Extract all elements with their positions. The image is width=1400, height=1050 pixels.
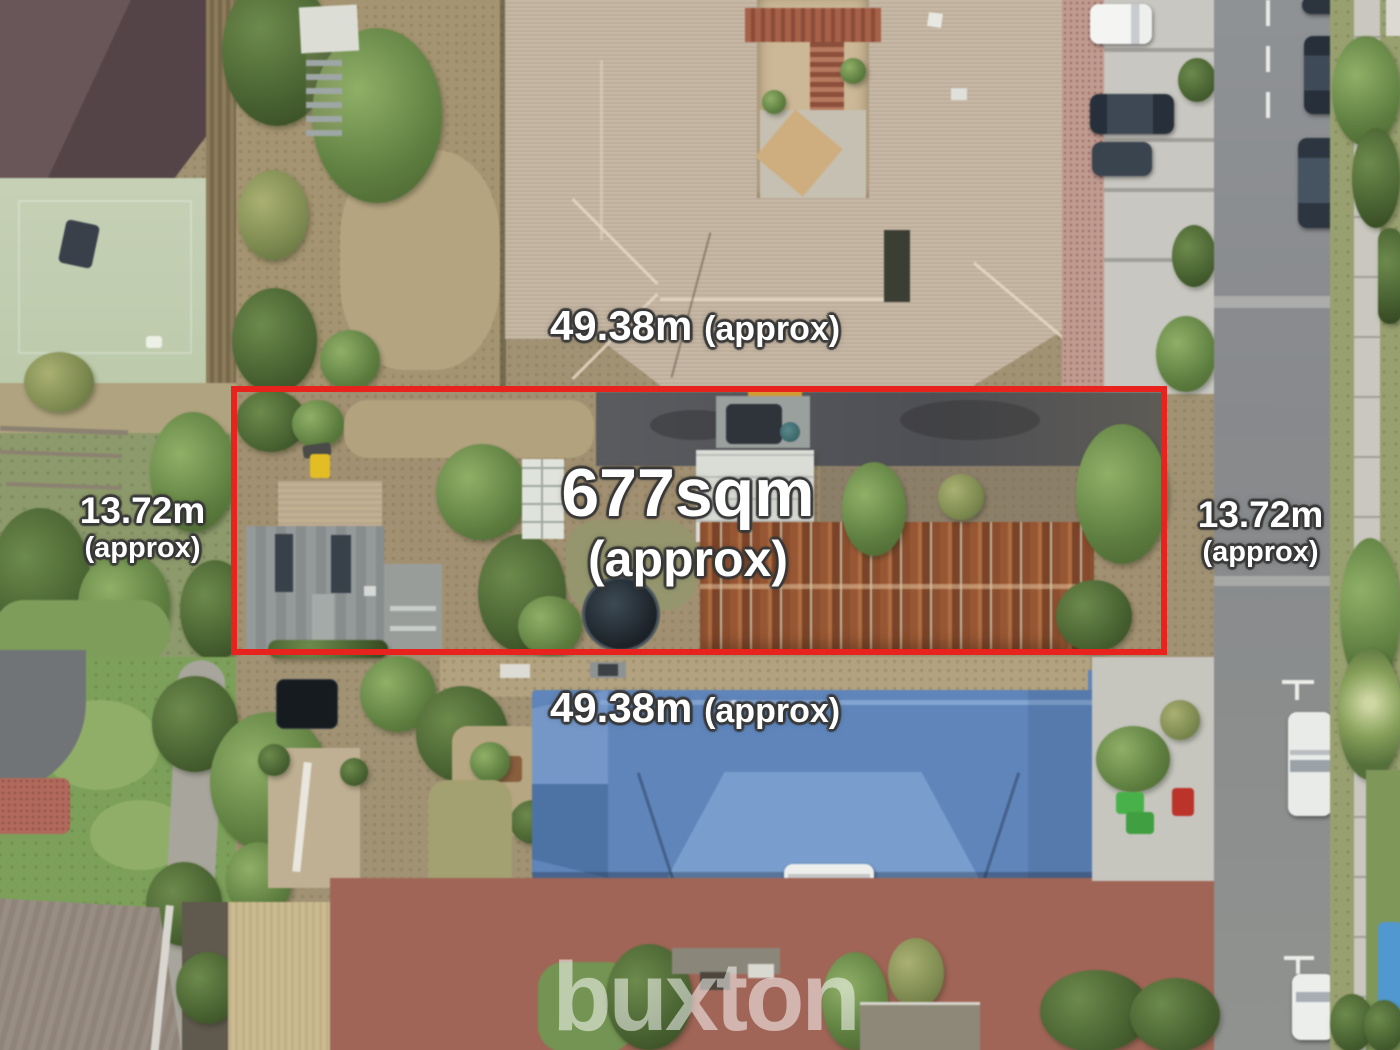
yard-object-dark — [598, 664, 618, 676]
ute-window — [1290, 760, 1330, 772]
bottom-width-label: 49.38m (approx) — [505, 686, 885, 730]
yard-object — [500, 664, 530, 678]
court-line — [18, 200, 192, 354]
hedge — [1378, 228, 1400, 324]
bay-line — [1104, 48, 1214, 52]
right-depth-value: 13.72m — [1158, 496, 1363, 534]
roof-ridge — [600, 60, 603, 240]
dark-car — [1090, 94, 1174, 134]
road-crossing — [1214, 576, 1330, 586]
white-car — [1090, 4, 1152, 44]
blue-pool — [1378, 922, 1400, 1010]
road-centerline — [1266, 0, 1270, 130]
top-width-qualifier: (approx) — [704, 310, 840, 348]
parking-t-mark — [1296, 960, 1300, 974]
hedge — [1364, 1000, 1400, 1050]
area-value: 677sqm — [528, 458, 848, 529]
white-roof-sliver — [1386, 0, 1400, 36]
plant — [840, 58, 866, 84]
plant — [762, 90, 786, 114]
left-depth-label: 13.72m (approx) — [35, 492, 250, 564]
left-depth-qualifier: (approx) — [35, 533, 250, 563]
area-label: 677sqm (approx) — [528, 458, 848, 585]
bottom-width-qualifier: (approx) — [704, 692, 840, 730]
car-window — [1296, 992, 1330, 1002]
top-width-label: 49.38m (approx) — [505, 304, 885, 348]
right-depth-qualifier: (approx) — [1158, 537, 1363, 567]
house-roof-dark — [0, 0, 212, 192]
court-marking — [146, 336, 162, 348]
tree — [238, 170, 308, 260]
bush — [1160, 700, 1200, 740]
tree — [1332, 36, 1400, 146]
road-crossing — [1214, 296, 1330, 308]
tree — [888, 938, 944, 1008]
dark-doorway — [884, 230, 910, 302]
hedge — [1130, 978, 1220, 1050]
shade-structure — [299, 5, 359, 54]
stairs — [810, 42, 844, 112]
walkway-bridge — [745, 8, 881, 42]
brick-path — [0, 778, 70, 834]
hedge — [1096, 726, 1170, 792]
roof-vent — [951, 88, 967, 100]
backyard-pool — [276, 679, 338, 729]
left-depth-value: 13.72m — [35, 492, 250, 530]
area-qualifier: (approx) — [528, 533, 848, 585]
aerial-property-photo: 49.38m (approx) 677sqm (approx) 13.72m (… — [0, 0, 1400, 1050]
green-bin — [1126, 812, 1154, 834]
bush — [340, 758, 368, 786]
white-car — [1292, 974, 1334, 1040]
ute-tray-line — [1290, 750, 1330, 755]
bay-line — [1104, 188, 1214, 192]
top-width-value: 49.38m — [550, 302, 692, 349]
hedge — [1178, 58, 1216, 102]
roof-ridge — [660, 298, 900, 301]
dark-car — [1092, 142, 1152, 176]
roof-vent — [927, 12, 943, 28]
bush — [24, 352, 94, 412]
bush — [470, 742, 510, 782]
tree — [1156, 316, 1216, 392]
palm-tree — [1338, 648, 1400, 780]
tree — [232, 288, 317, 393]
hedge — [1172, 225, 1216, 287]
tree — [1352, 128, 1400, 228]
bottom-width-value: 49.38m — [550, 684, 692, 731]
bush — [258, 744, 290, 776]
green-bin — [1116, 792, 1144, 814]
scaffold — [306, 52, 342, 136]
red-bin — [1172, 788, 1194, 816]
parking-t-mark — [1295, 684, 1299, 700]
tree — [320, 330, 380, 390]
brick-edge — [1062, 0, 1104, 394]
right-depth-label: 13.72m (approx) — [1158, 496, 1363, 568]
brand-watermark: buxton — [540, 948, 870, 1045]
grey-shed — [860, 1002, 980, 1050]
